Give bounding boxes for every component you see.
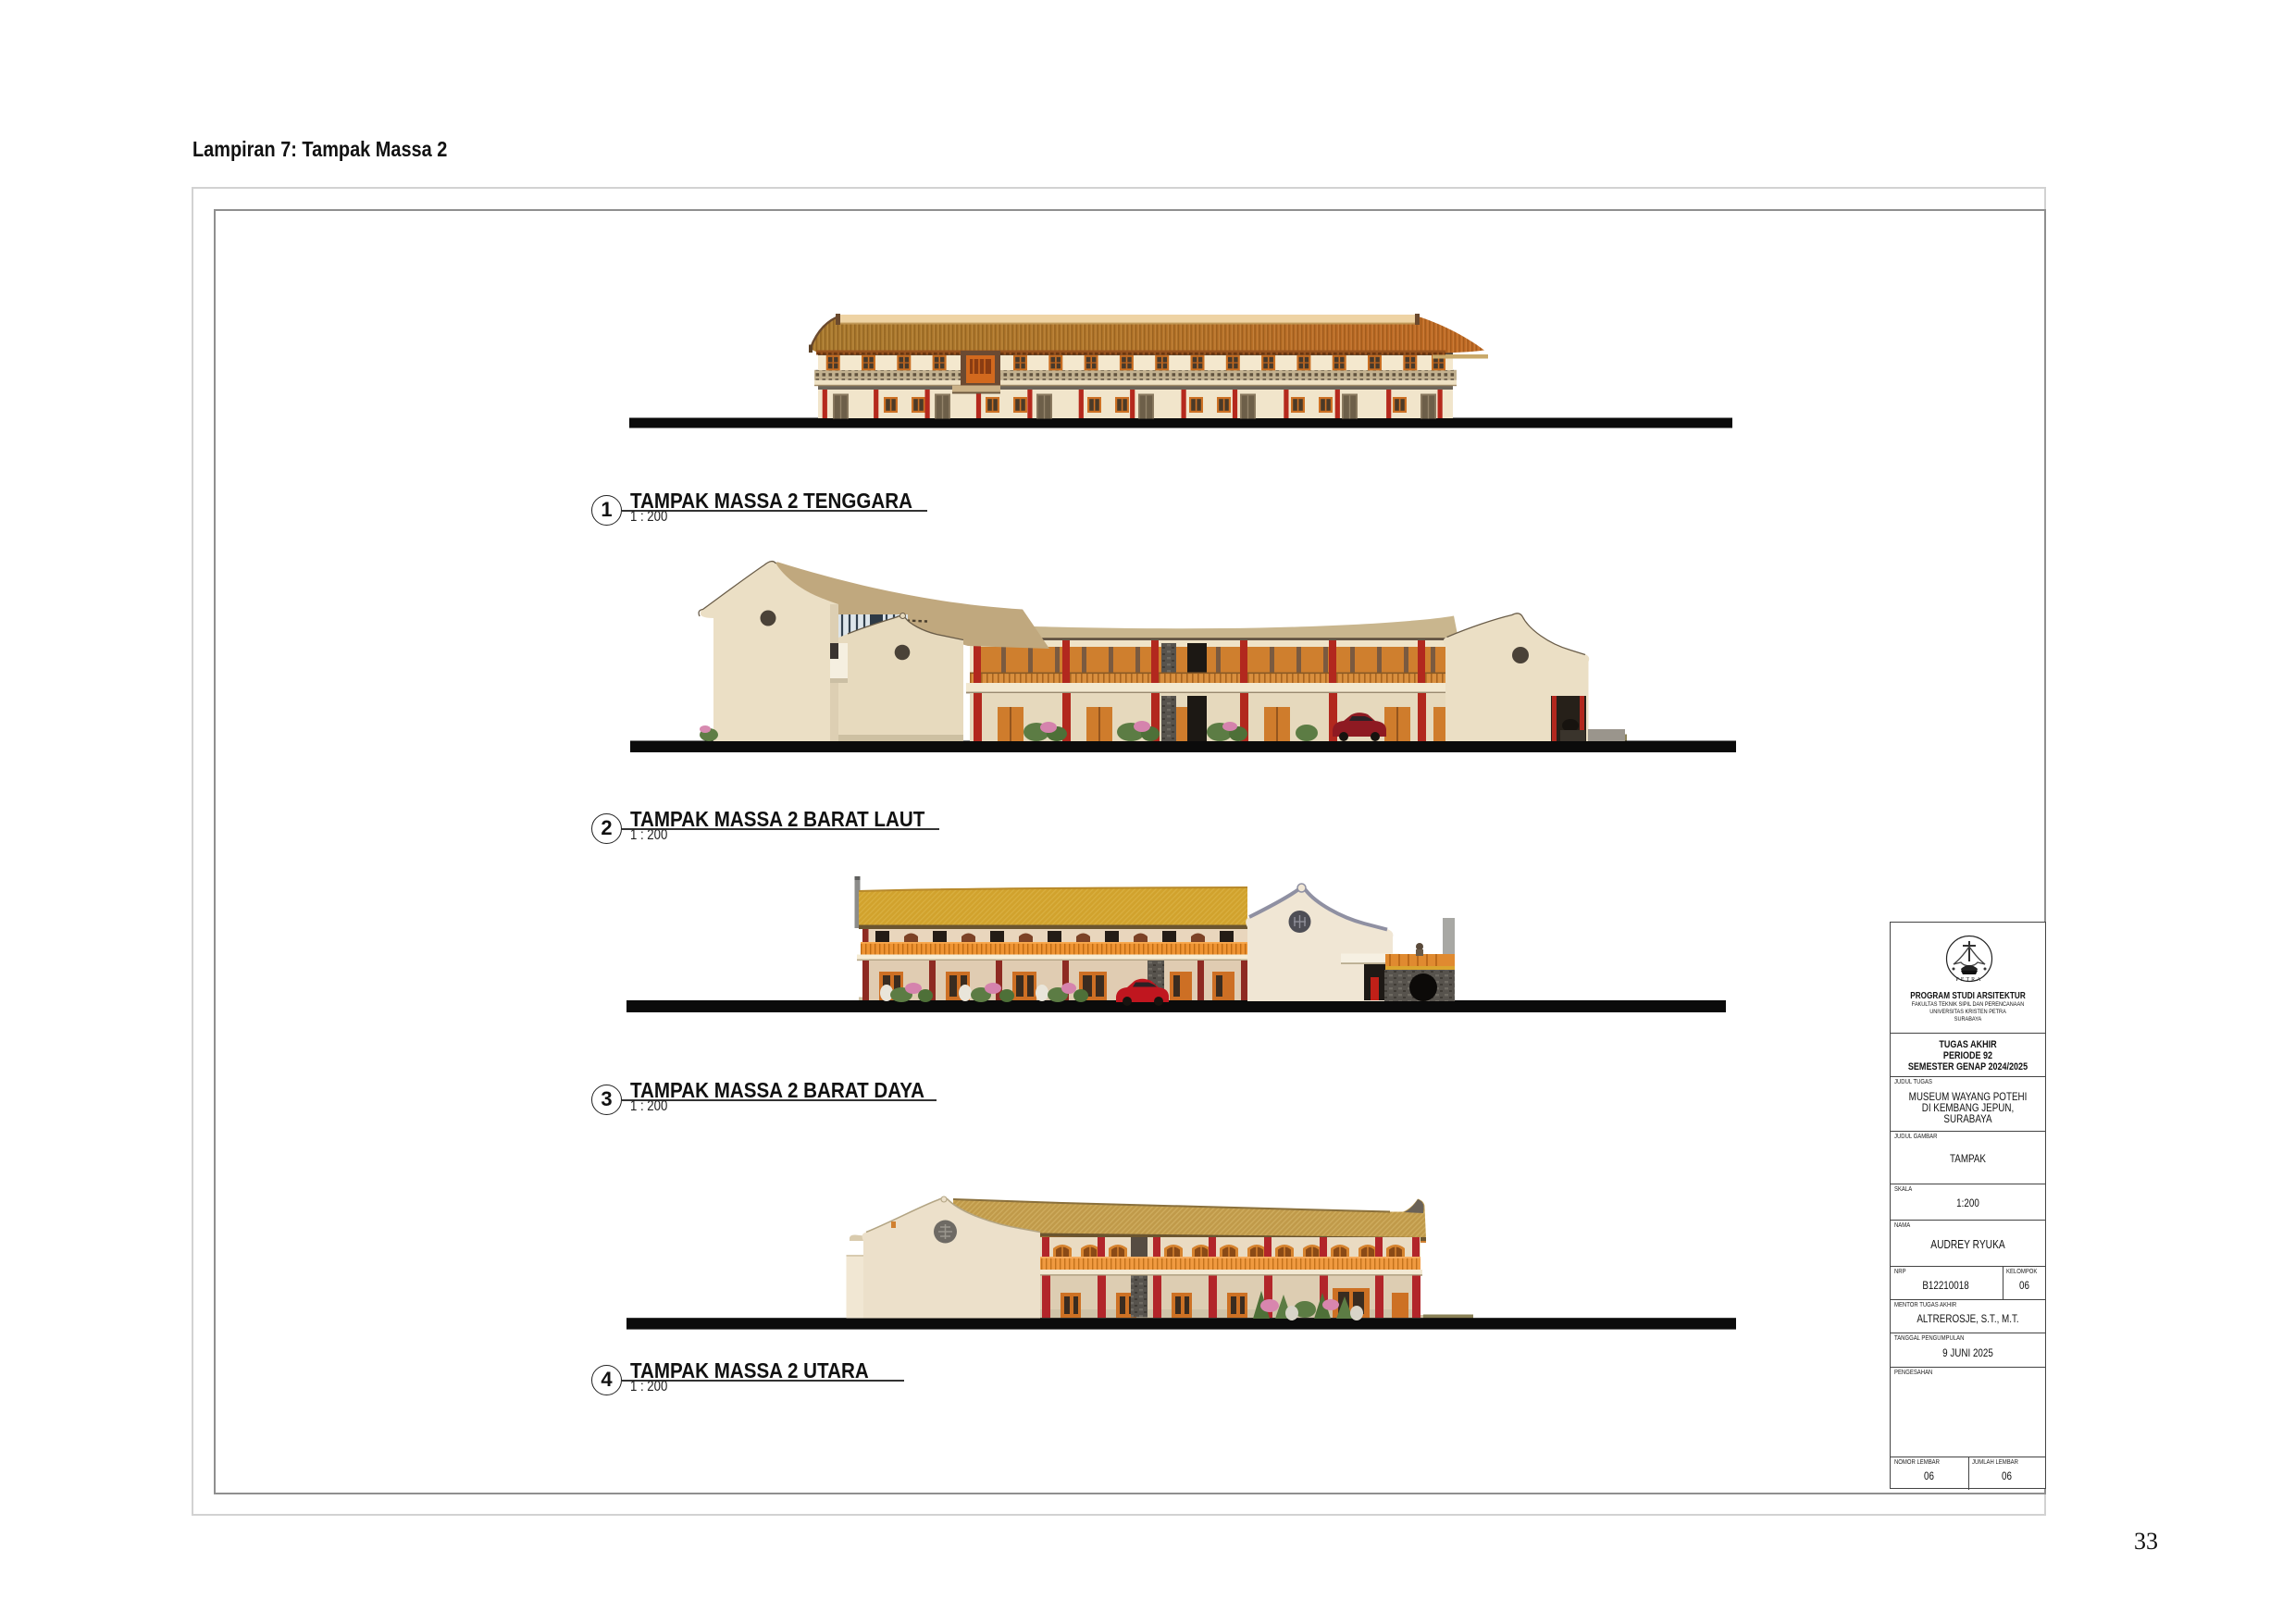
svg-text:PETRA: PETRA [1955, 977, 1982, 983]
